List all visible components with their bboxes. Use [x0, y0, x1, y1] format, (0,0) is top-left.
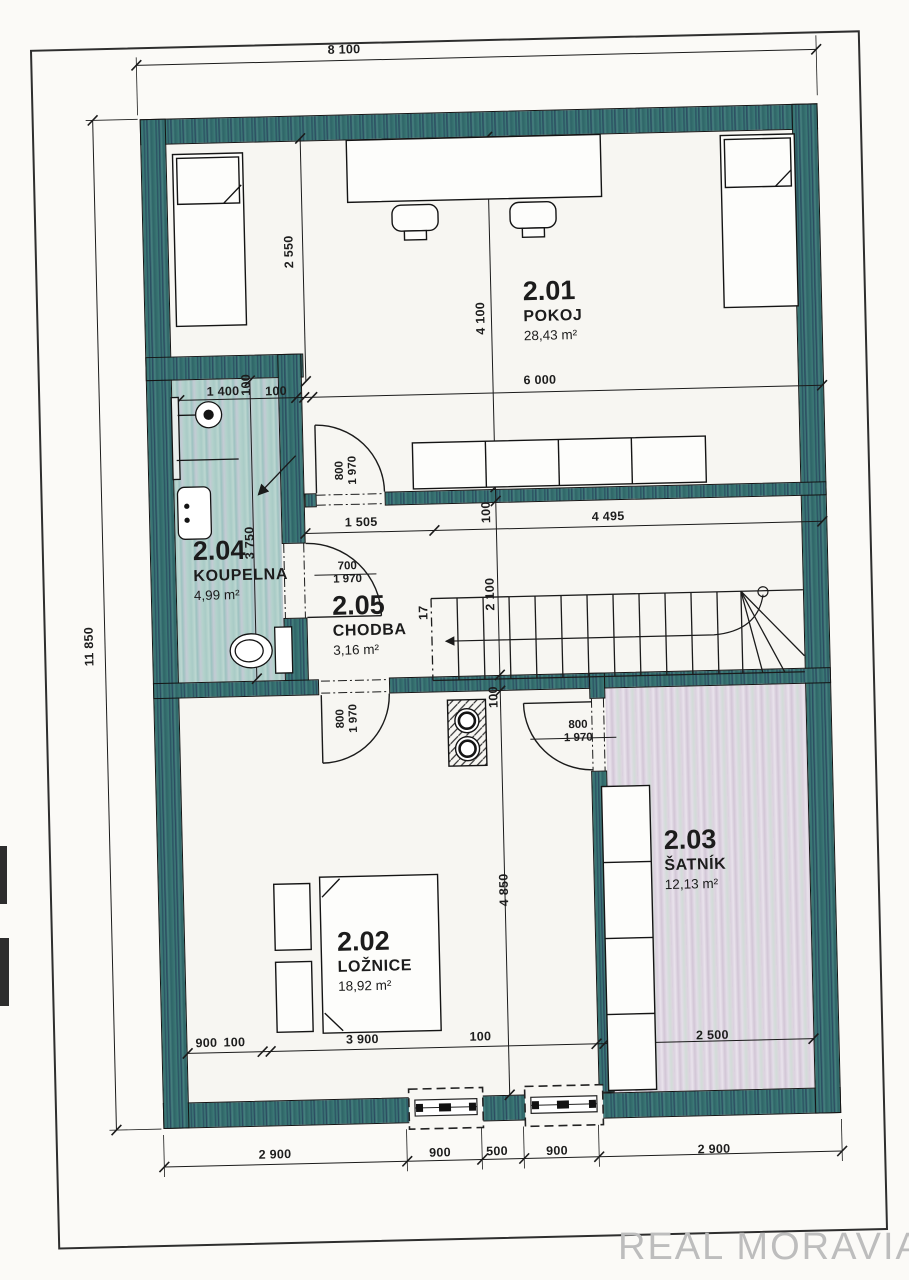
- room-label-chodba: 2.05 CHODBA 3,16 m²: [332, 591, 407, 657]
- room-name: LOŽNICE: [338, 958, 413, 976]
- dim-wall-100-bath: 100: [239, 374, 254, 396]
- dim-loznice-width: 3 900: [346, 1032, 379, 1047]
- dim-100-d: 100: [469, 1029, 491, 1044]
- window-1: [409, 1087, 484, 1129]
- toilet-icon: [230, 627, 293, 674]
- dim-bottom-900-b: 900: [546, 1143, 568, 1158]
- bed-top-left: [172, 153, 246, 327]
- door-label-pokoj: 800 1 970: [333, 456, 360, 485]
- door-label-satnik: 800 1 970: [564, 719, 593, 746]
- room-label-pokoj: 2.01 POKOJ 28,43 m²: [522, 277, 583, 343]
- door-width: 700: [333, 560, 362, 574]
- desk: [346, 134, 601, 202]
- room-area: 12,13 m²: [665, 877, 727, 892]
- dim-stairs-height: 2 100: [483, 578, 498, 611]
- door-label-koupelna: 700 1 970: [333, 560, 362, 587]
- dim-overall-height: 11 850: [82, 627, 97, 667]
- room-area: 4,99 m²: [194, 587, 289, 603]
- dim-wall-100-b: 100: [486, 686, 501, 708]
- door-width: 800: [564, 719, 593, 733]
- roof-windows: [409, 1085, 604, 1130]
- room-number: 2.05: [332, 591, 406, 620]
- dim-900-a: 900: [195, 1036, 217, 1051]
- room-area: 18,92 m²: [338, 978, 413, 993]
- room-name: CHODBA: [333, 622, 407, 640]
- closet-shelves: [601, 785, 656, 1090]
- room-number: 2.02: [337, 927, 412, 956]
- door-height: 1 970: [333, 573, 362, 587]
- room-area: 28,43 m²: [524, 328, 583, 343]
- dim-wall-100-bath2: 100: [265, 384, 287, 399]
- room-name: KOUPELNA: [193, 567, 288, 585]
- room-number: 2.04: [193, 536, 288, 565]
- chair-1: [392, 204, 439, 240]
- floor-plan-scan: 2.01 POKOJ 28,43 m² 2.02 LOŽNICE 18,92 m…: [0, 0, 909, 1280]
- dim-bottom-500: 500: [486, 1144, 508, 1159]
- room-name: ŠATNÍK: [664, 857, 726, 874]
- dim-bottom-2900-a: 2 900: [259, 1147, 292, 1162]
- room-name: POKOJ: [523, 308, 582, 325]
- scan-artifact-1: [0, 846, 7, 904]
- room-area: 3,16 m²: [333, 642, 407, 657]
- room-number: 2.01: [522, 277, 582, 305]
- scan-artifact-2: [0, 938, 9, 1006]
- plan-linework: [0, 0, 909, 1280]
- section-arrow: [258, 456, 297, 495]
- scan-content: 2.01 POKOJ 28,43 m² 2.02 LOŽNICE 18,92 m…: [0, 0, 909, 1280]
- nightstand-1: [274, 883, 312, 950]
- chimney: [447, 699, 487, 766]
- dim-overall-width: 8 100: [328, 42, 361, 57]
- dim-stairs-width: 4 495: [592, 509, 625, 524]
- dim-pokoj-height: 4 100: [473, 302, 488, 335]
- nightstand-2: [276, 961, 314, 1032]
- room-label-koupelna: 2.04 KOUPELNA 4,99 m²: [193, 536, 289, 603]
- door-height: 1 970: [564, 732, 593, 746]
- dim-bottom-2900-b: 2 900: [698, 1142, 731, 1157]
- dim-bath-height: 3 750: [242, 526, 257, 559]
- room-label-satnik: 2.03 ŠATNÍK 12,13 m²: [663, 826, 726, 892]
- dim-bottom-900-a: 900: [429, 1145, 451, 1160]
- dim-100-c: 100: [223, 1035, 245, 1050]
- room-number: 2.03: [663, 826, 726, 854]
- door-width: 800: [333, 456, 347, 485]
- chair-2: [510, 201, 557, 237]
- door-height: 1 970: [347, 456, 361, 485]
- furniture: [172, 130, 816, 1100]
- dim-satnik-width: 2 500: [696, 1028, 729, 1043]
- dim-bath-width: 1 400: [207, 384, 240, 399]
- bed-top-right: [720, 134, 798, 308]
- watermark: REAL MORAVIA: [618, 1226, 909, 1269]
- dim-pokoj-width: 6 000: [523, 373, 556, 388]
- dim-loznice-height: 4 850: [497, 873, 512, 906]
- door-label-loznice: 800 1 970: [334, 704, 361, 733]
- shower-icon: [171, 396, 239, 480]
- sink-icon: [177, 487, 211, 540]
- wardrobe-pokoj: [412, 436, 706, 489]
- door-height: 1 970: [347, 704, 361, 733]
- door-width: 800: [334, 704, 348, 733]
- stair-count: 17: [416, 605, 430, 620]
- window-2: [525, 1085, 604, 1127]
- dim-wall-100-a: 100: [479, 501, 494, 523]
- dim-bed-length: 2 550: [281, 235, 296, 268]
- dim-chodba-width: 1 505: [345, 515, 378, 530]
- room-label-loznice: 2.02 LOŽNICE 18,92 m²: [337, 927, 413, 993]
